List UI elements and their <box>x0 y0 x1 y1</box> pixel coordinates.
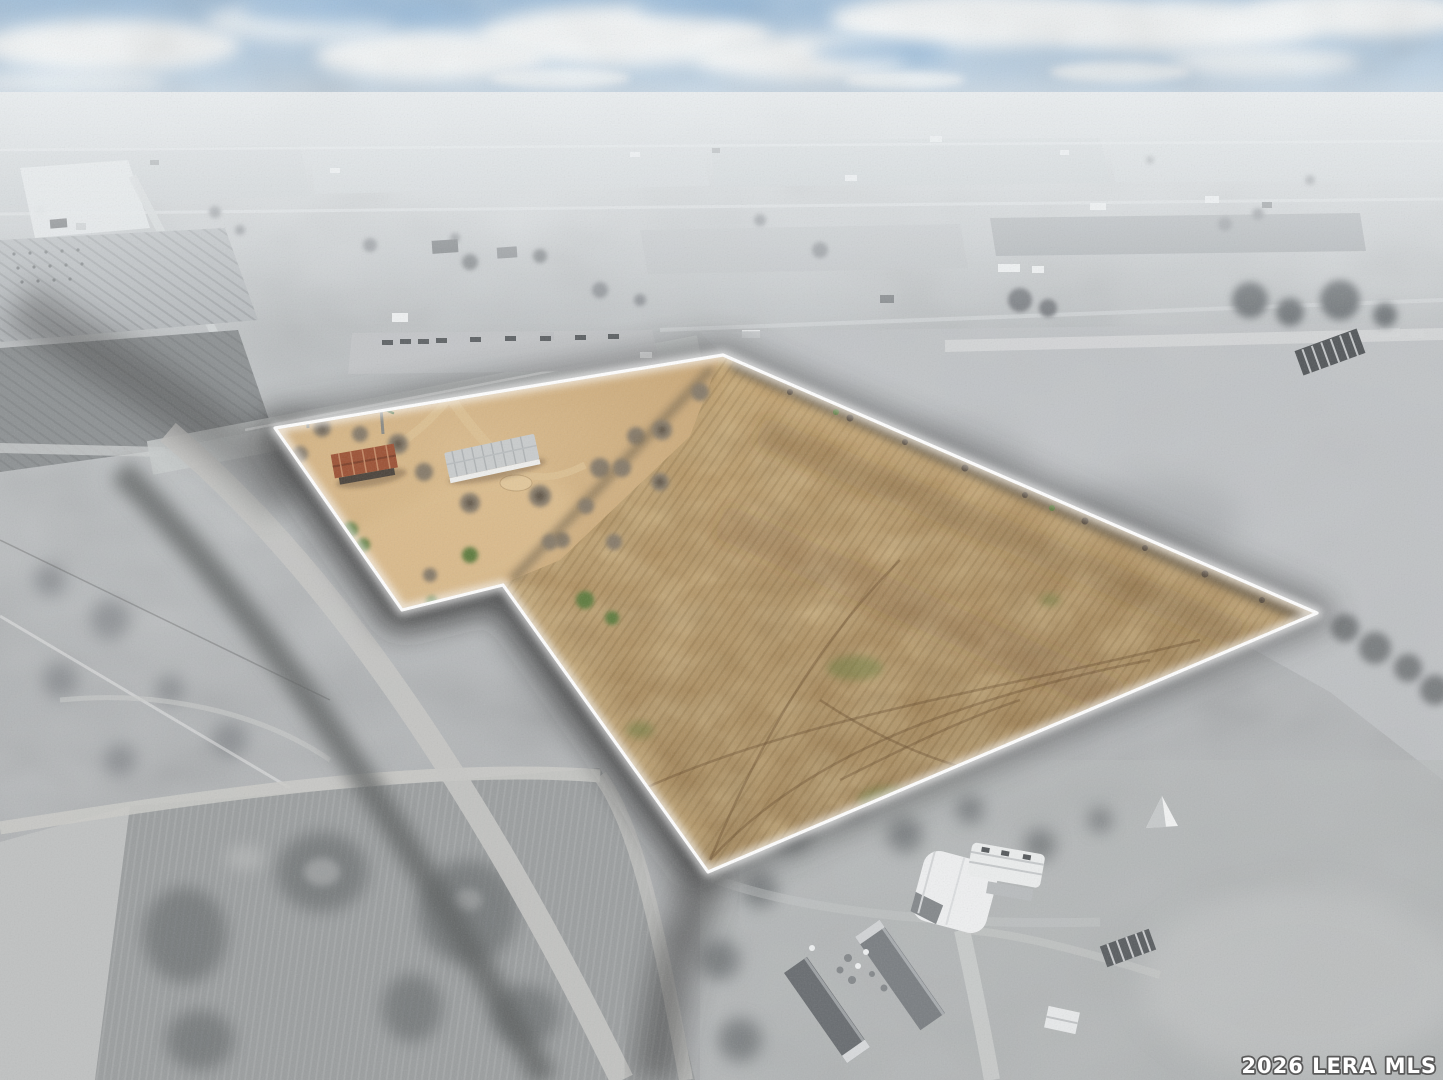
mls-watermark: 2026 LERA MLS <box>1241 1054 1437 1078</box>
film-grain <box>0 92 1443 1080</box>
aerial-photo: 2026 LERA MLS <box>0 0 1443 1080</box>
